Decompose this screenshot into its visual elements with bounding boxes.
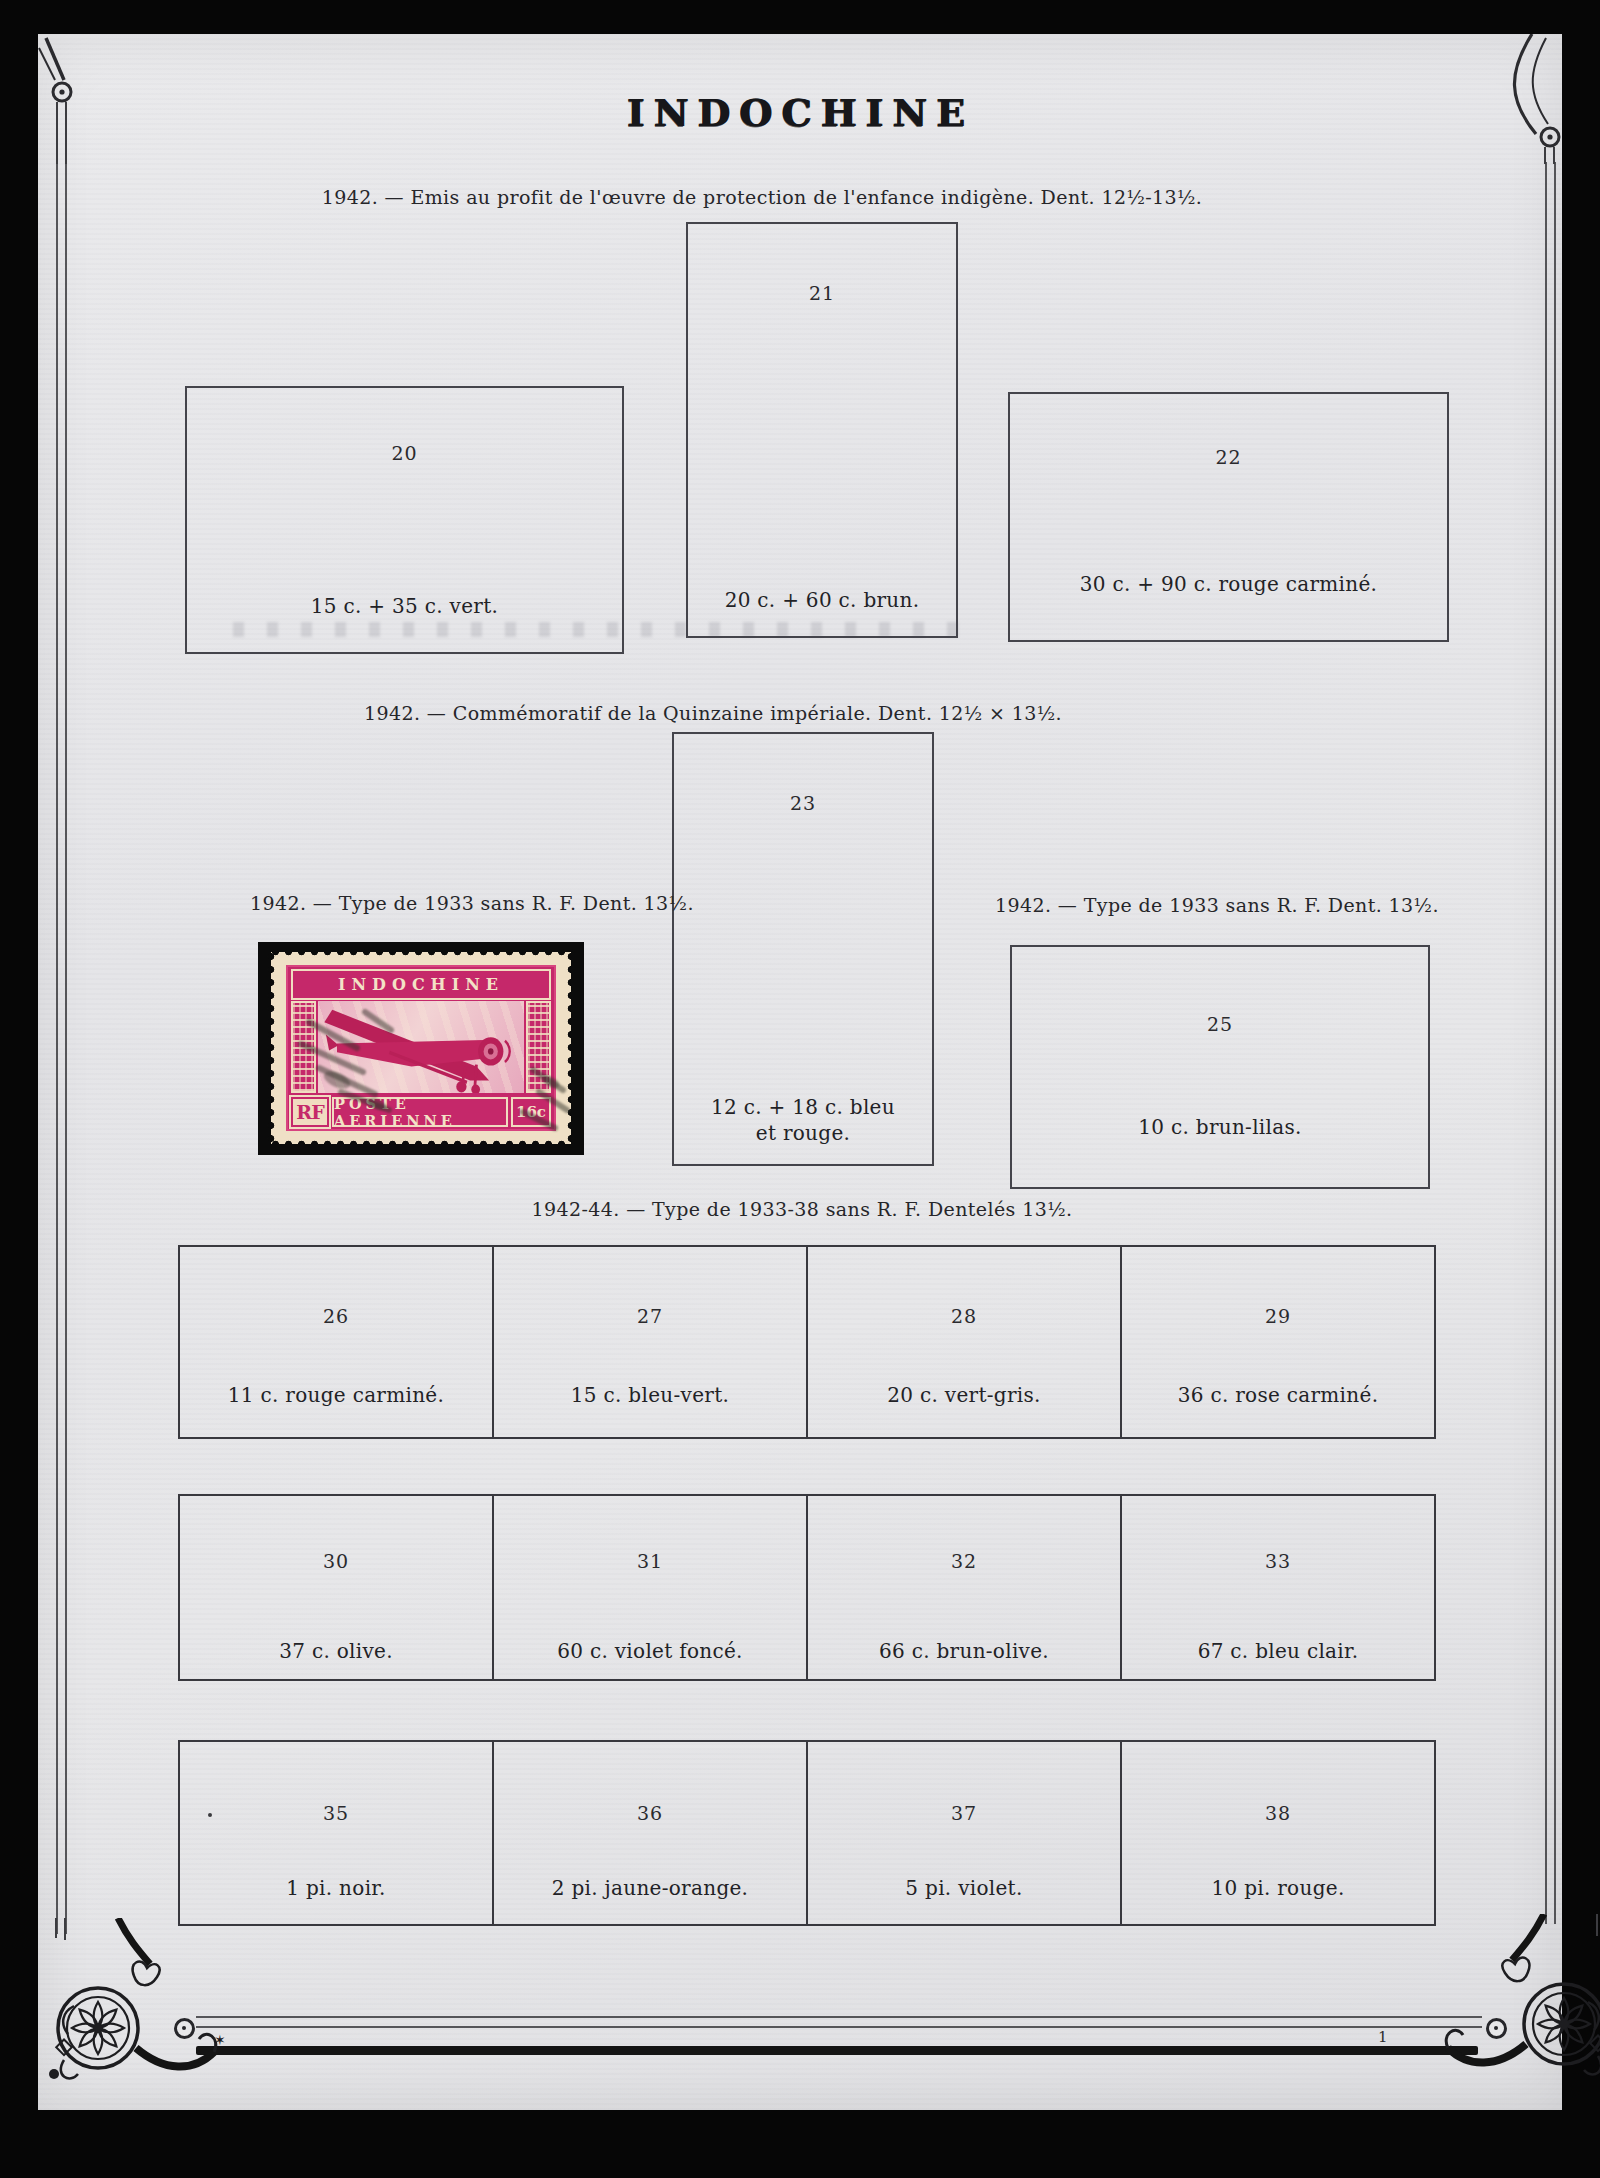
paper-speck [208,1813,212,1817]
stamp-rf-monogram: RF [291,1097,329,1127]
slot-label: 5 pi. violet. [808,1876,1120,1900]
airplane-icon [318,1001,524,1093]
stamp-slot-29: 29 36 c. rose carminé. [1122,1247,1434,1437]
airmail-stamp: INDOCHINE [271,952,571,1144]
perforation-bottom [269,1139,573,1149]
slot-label: 37 c. olive. [180,1639,492,1663]
border-right-line-inner [1545,162,1547,1924]
stamp-meander-border-left [291,1001,316,1093]
stamp-inscription: POSTE AERIENNE [332,1097,508,1127]
section-caption-type1933-right: 1942. — Type de 1933 sans R. F. Dent. 13… [995,894,1439,916]
stamp-country-band: INDOCHINE [291,969,551,1000]
slot-label: 60 c. violet foncé. [494,1639,806,1663]
border-bottom-line-thick [196,2046,1478,2055]
slot-number: 26 [180,1305,492,1327]
perforation-left [266,950,276,1146]
slot-label: 15 c. bleu-vert. [494,1383,806,1407]
stamp-slot-23: 23 12 c. + 18 c. bleu et rouge. [672,732,934,1166]
page-number: 1 [1378,2028,1389,2046]
slot-number: 21 [688,282,956,304]
stamp-slot-31: 31 60 c. violet foncé. [494,1496,808,1679]
slot-row-30-33: 30 37 c. olive. 31 60 c. violet foncé. 3… [178,1494,1436,1681]
page-title: INDOCHINE [38,90,1562,135]
album-page: INDOCHINE 1942. — Emis au profit de l'œu… [38,34,1562,2110]
stamp-slot-25: 25 10 c. brun-lilas. [1010,945,1430,1189]
slot-label: 10 c. brun-lilas. [1012,1115,1428,1139]
border-left-line-inner [65,160,67,1934]
stamp-slot-21: 21 20 c. + 60 c. brun. [686,222,958,638]
border-bottom-line-lower [196,2026,1482,2028]
border-bottom-line-upper [196,2016,1482,2018]
section-caption-type1933-38: 1942-44. — Type de 1933-38 sans R. F. De… [242,1198,1362,1220]
perforation-right [566,950,576,1146]
stamp-slot-32: 32 66 c. brun-olive. [808,1496,1122,1679]
slot-number: 22 [1010,446,1447,468]
slot-number: 25 [1012,1013,1428,1035]
slot-label: 1 pi. noir. [180,1876,492,1900]
slot-number: 27 [494,1305,806,1327]
slot-number: 33 [1122,1550,1434,1572]
slot-number: 28 [808,1305,1120,1327]
stamp-slot-27: 27 15 c. bleu-vert. [494,1247,808,1437]
slot-label: 2 pi. jaune-orange. [494,1876,806,1900]
slot-number: 23 [674,792,932,814]
slot-number: 35 [180,1802,492,1824]
perforation-top [269,947,573,957]
slot-number: 37 [808,1802,1120,1824]
stamp-slot-26: 26 11 c. rouge carminé. [180,1247,494,1437]
section-caption-quinzaine: 1942. — Commémoratif de la Quinzaine imp… [153,702,1273,724]
stamp-slot-20: 20 15 c. + 35 c. vert. [185,386,624,654]
slot-label: 12 c. + 18 c. bleu et rouge. [698,1094,908,1146]
stamp-slot-30: 30 37 c. olive. [180,1496,494,1679]
stamp-slot-33: 33 67 c. bleu clair. [1122,1496,1434,1679]
slot-number: 29 [1122,1305,1434,1327]
slot-number: 30 [180,1550,492,1572]
slot-label: 36 c. rose carminé. [1122,1383,1434,1407]
border-left-line-outer [56,160,58,1934]
slot-label: 20 c. vert-gris. [808,1383,1120,1407]
slot-row-35-38: 35 1 pi. noir. 36 2 pi. jaune-orange. 37… [178,1740,1436,1926]
stamp-slot-37: 37 5 pi. violet. [808,1742,1122,1924]
stamp-vignette [318,1001,524,1093]
stamp-slot-38: 38 10 pi. rouge. [1122,1742,1434,1924]
asterisk-icon: ✶ [214,2032,226,2048]
scanned-album-photo: { "page": { "title": "INDOCHINE", "foote… [0,0,1600,2178]
stamp-slot-36: 36 2 pi. jaune-orange. [494,1742,808,1924]
ink-offset-smudge [233,622,963,637]
stamp-slot-22: 22 30 c. + 90 c. rouge carminé. [1008,392,1449,642]
slot-label: 10 pi. rouge. [1122,1876,1434,1900]
section-caption-enfance: 1942. — Emis au profit de l'œuvre de pro… [202,186,1322,208]
slot-number: 31 [494,1550,806,1572]
slot-label: 20 c. + 60 c. brun. [688,588,956,612]
slot-number: 32 [808,1550,1120,1572]
border-right-line-outer [1554,162,1556,1924]
slot-label: 30 c. + 90 c. rouge carminé. [1010,572,1447,596]
corner-rosette-bottom-right-icon [1428,1914,1600,2094]
stamp-design: INDOCHINE [286,965,556,1131]
section-caption-type1933-left: 1942. — Type de 1933 sans R. F. Dent. 13… [250,892,694,914]
stamp-value: 16c [511,1097,551,1127]
stamp-meander-border-right [526,1001,551,1093]
slot-number: 38 [1122,1802,1434,1824]
slot-label: 67 c. bleu clair. [1122,1639,1434,1663]
corner-rosette-bottom-left-icon [34,1918,234,2098]
stamp-mount: INDOCHINE [258,942,584,1155]
stamp-slot-35: 35 1 pi. noir. [180,1742,494,1924]
slot-number: 36 [494,1802,806,1824]
slot-number: 20 [187,442,622,464]
stamp-slot-28: 28 20 c. vert-gris. [808,1247,1122,1437]
slot-label: 15 c. + 35 c. vert. [187,594,622,618]
slot-label: 66 c. brun-olive. [808,1639,1120,1663]
slot-row-26-29: 26 11 c. rouge carminé. 27 15 c. bleu-ve… [178,1245,1436,1439]
slot-label: 11 c. rouge carminé. [180,1383,492,1407]
